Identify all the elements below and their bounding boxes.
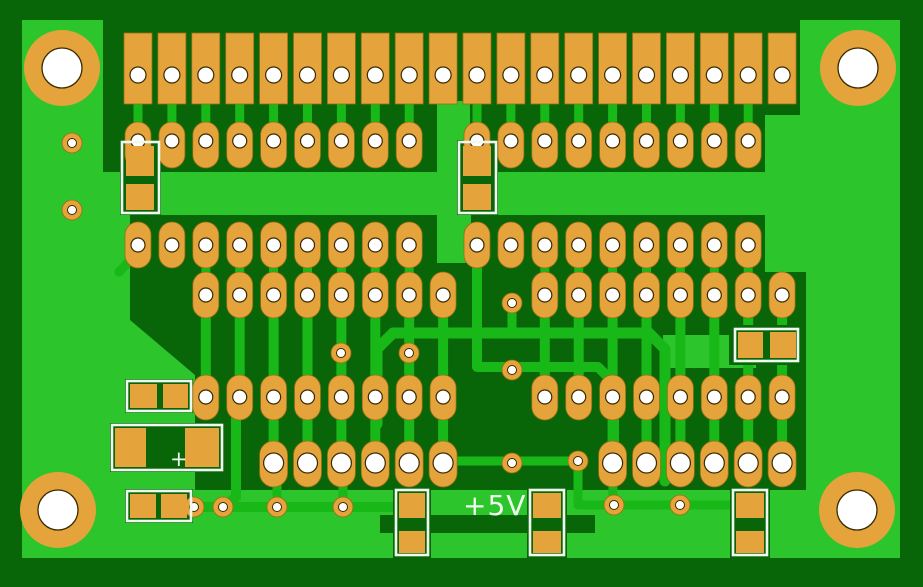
pad-hole <box>572 390 586 404</box>
smd-resistor-right-pad <box>738 332 763 358</box>
trace-stub <box>269 314 279 378</box>
smd-capacitor-polarized-pad <box>115 428 146 467</box>
via-hole <box>337 349 346 358</box>
pad-hole <box>673 288 687 302</box>
pad-hole <box>706 67 722 83</box>
pad-hole <box>233 288 247 302</box>
pad-hole <box>402 288 416 302</box>
smd-resistor-vertical-mid-pad <box>463 184 491 210</box>
pad-hole <box>606 238 620 252</box>
pad-hole <box>301 238 315 252</box>
smd-resistor-vertical-left-pad <box>126 184 154 210</box>
via-hole <box>219 503 228 512</box>
pad-hole <box>130 67 146 83</box>
smd-bottom-2-pad <box>533 531 561 553</box>
mounting-hole-bore <box>38 490 78 530</box>
mounting-hole-bore <box>42 48 82 88</box>
pad-hole <box>301 390 315 404</box>
trace-stub <box>709 314 719 378</box>
mounting-hole-bore <box>838 48 878 88</box>
pad-hole <box>131 238 145 252</box>
smd-bottom-2-pad <box>533 493 561 518</box>
pad-hole <box>537 67 553 83</box>
pad-hole <box>672 67 688 83</box>
pad-hole <box>572 238 586 252</box>
pad-hole <box>741 238 755 252</box>
pad-hole <box>334 238 348 252</box>
pad-hole <box>267 134 281 148</box>
smd-bottom-1-pad <box>399 531 425 553</box>
pad-hole <box>772 453 792 473</box>
pad-hole <box>774 67 790 83</box>
pad-hole <box>298 453 318 473</box>
pad-hole <box>741 288 755 302</box>
pad-hole <box>435 67 451 83</box>
pad-hole <box>704 453 724 473</box>
polarity-plus-label: + <box>170 449 189 470</box>
pad-hole <box>232 67 248 83</box>
smd-bottom-3-pad <box>736 531 764 553</box>
pad-hole <box>164 67 180 83</box>
pad-hole <box>300 67 316 83</box>
trace-stub <box>303 314 313 378</box>
pad-hole <box>640 288 654 302</box>
smd-bottom-1-pad <box>399 493 425 518</box>
pad-hole <box>538 134 552 148</box>
pad-hole <box>267 288 281 302</box>
pad-hole <box>233 390 247 404</box>
pad-hole <box>707 238 721 252</box>
via-hole <box>339 503 348 512</box>
pad-hole <box>264 453 284 473</box>
pad-hole <box>639 67 655 83</box>
via-hole <box>68 206 77 215</box>
pad-hole <box>199 390 213 404</box>
smd-resistor-horizontal-left-pad <box>163 384 188 408</box>
smd-capacitor-polarized-pad <box>185 428 219 467</box>
pad-hole <box>571 67 587 83</box>
pad-hole <box>740 67 756 83</box>
pad-hole <box>469 67 485 83</box>
smd-resistor-vertical-mid-pad <box>463 146 491 176</box>
pad-hole <box>368 288 382 302</box>
pad-hole <box>707 288 721 302</box>
pad-hole <box>738 453 758 473</box>
pad-hole <box>367 67 383 83</box>
pad-hole <box>402 134 416 148</box>
pad-hole <box>572 134 586 148</box>
pad-hole <box>741 134 755 148</box>
pad-hole <box>368 238 382 252</box>
pcb-layout-view: +5V + <box>0 0 923 587</box>
pad-hole <box>331 453 351 473</box>
pad-hole <box>233 238 247 252</box>
pad-hole <box>673 134 687 148</box>
pad-hole <box>301 134 315 148</box>
pad-hole <box>572 288 586 302</box>
via-hole <box>508 459 517 468</box>
trace-stub <box>438 314 448 378</box>
pad-hole <box>165 238 179 252</box>
pad-hole <box>402 238 416 252</box>
pad-hole <box>436 390 450 404</box>
smd-resistor-right-pad <box>770 332 796 358</box>
pad-hole <box>603 453 623 473</box>
pad-hole <box>301 288 315 302</box>
pad-hole <box>365 453 385 473</box>
pad-hole <box>368 134 382 148</box>
pad-hole <box>606 288 620 302</box>
via-hole <box>405 349 414 358</box>
pad-hole <box>606 390 620 404</box>
via-hole <box>68 139 77 148</box>
pad-hole <box>640 238 654 252</box>
via-hole <box>508 366 517 375</box>
via-hole <box>508 299 517 308</box>
mounting-hole-bore <box>837 490 877 530</box>
trace-stub <box>642 314 652 378</box>
pad-hole <box>637 453 657 473</box>
pad-hole <box>673 390 687 404</box>
smd-resistor-lower-left-pad <box>161 494 187 518</box>
pad-hole <box>503 67 519 83</box>
pad-hole <box>199 288 213 302</box>
pad-hole <box>640 134 654 148</box>
pad-hole <box>775 288 789 302</box>
pad-hole <box>233 134 247 148</box>
smd-resistor-vertical-left-pad <box>126 146 154 176</box>
pcb-board <box>0 0 923 587</box>
pad-hole <box>606 134 620 148</box>
smd-resistor-lower-left-pad <box>130 494 156 518</box>
via-hole <box>273 503 282 512</box>
trace-stub <box>201 314 211 378</box>
pad-hole <box>198 67 214 83</box>
pad-hole <box>775 390 789 404</box>
smd-resistor-horizontal-left-pad <box>130 384 157 408</box>
pad-hole <box>640 390 654 404</box>
pad-hole <box>538 238 552 252</box>
pad-hole <box>707 390 721 404</box>
trace-stub <box>608 314 618 378</box>
pad-hole <box>673 238 687 252</box>
pad-hole <box>165 134 179 148</box>
pad-hole <box>707 134 721 148</box>
pad-hole <box>470 238 484 252</box>
pad-hole <box>368 390 382 404</box>
pad-hole <box>436 288 450 302</box>
pad-hole <box>538 288 552 302</box>
via-hole <box>676 501 685 510</box>
pad-hole <box>670 453 690 473</box>
trace-stub <box>675 314 685 378</box>
pad-hole <box>334 390 348 404</box>
pad-hole <box>267 390 281 404</box>
pad-hole <box>402 390 416 404</box>
pad-hole <box>334 134 348 148</box>
pad-hole <box>741 390 755 404</box>
pad-hole <box>401 67 417 83</box>
pad-hole <box>334 288 348 302</box>
via-hole <box>610 501 619 510</box>
pad-hole <box>199 238 213 252</box>
pad-hole <box>504 134 518 148</box>
voltage-label: +5V <box>463 492 526 520</box>
pad-hole <box>267 238 281 252</box>
pad-hole <box>266 67 282 83</box>
smd-bottom-3-pad <box>736 493 764 518</box>
pad-hole <box>199 134 213 148</box>
pad-hole <box>433 453 453 473</box>
pad-hole <box>399 453 419 473</box>
pad-hole <box>538 390 552 404</box>
pad-hole <box>333 67 349 83</box>
via-hole <box>574 457 583 466</box>
pad-hole <box>504 238 518 252</box>
pad-hole <box>605 67 621 83</box>
trace-stub <box>235 314 245 378</box>
